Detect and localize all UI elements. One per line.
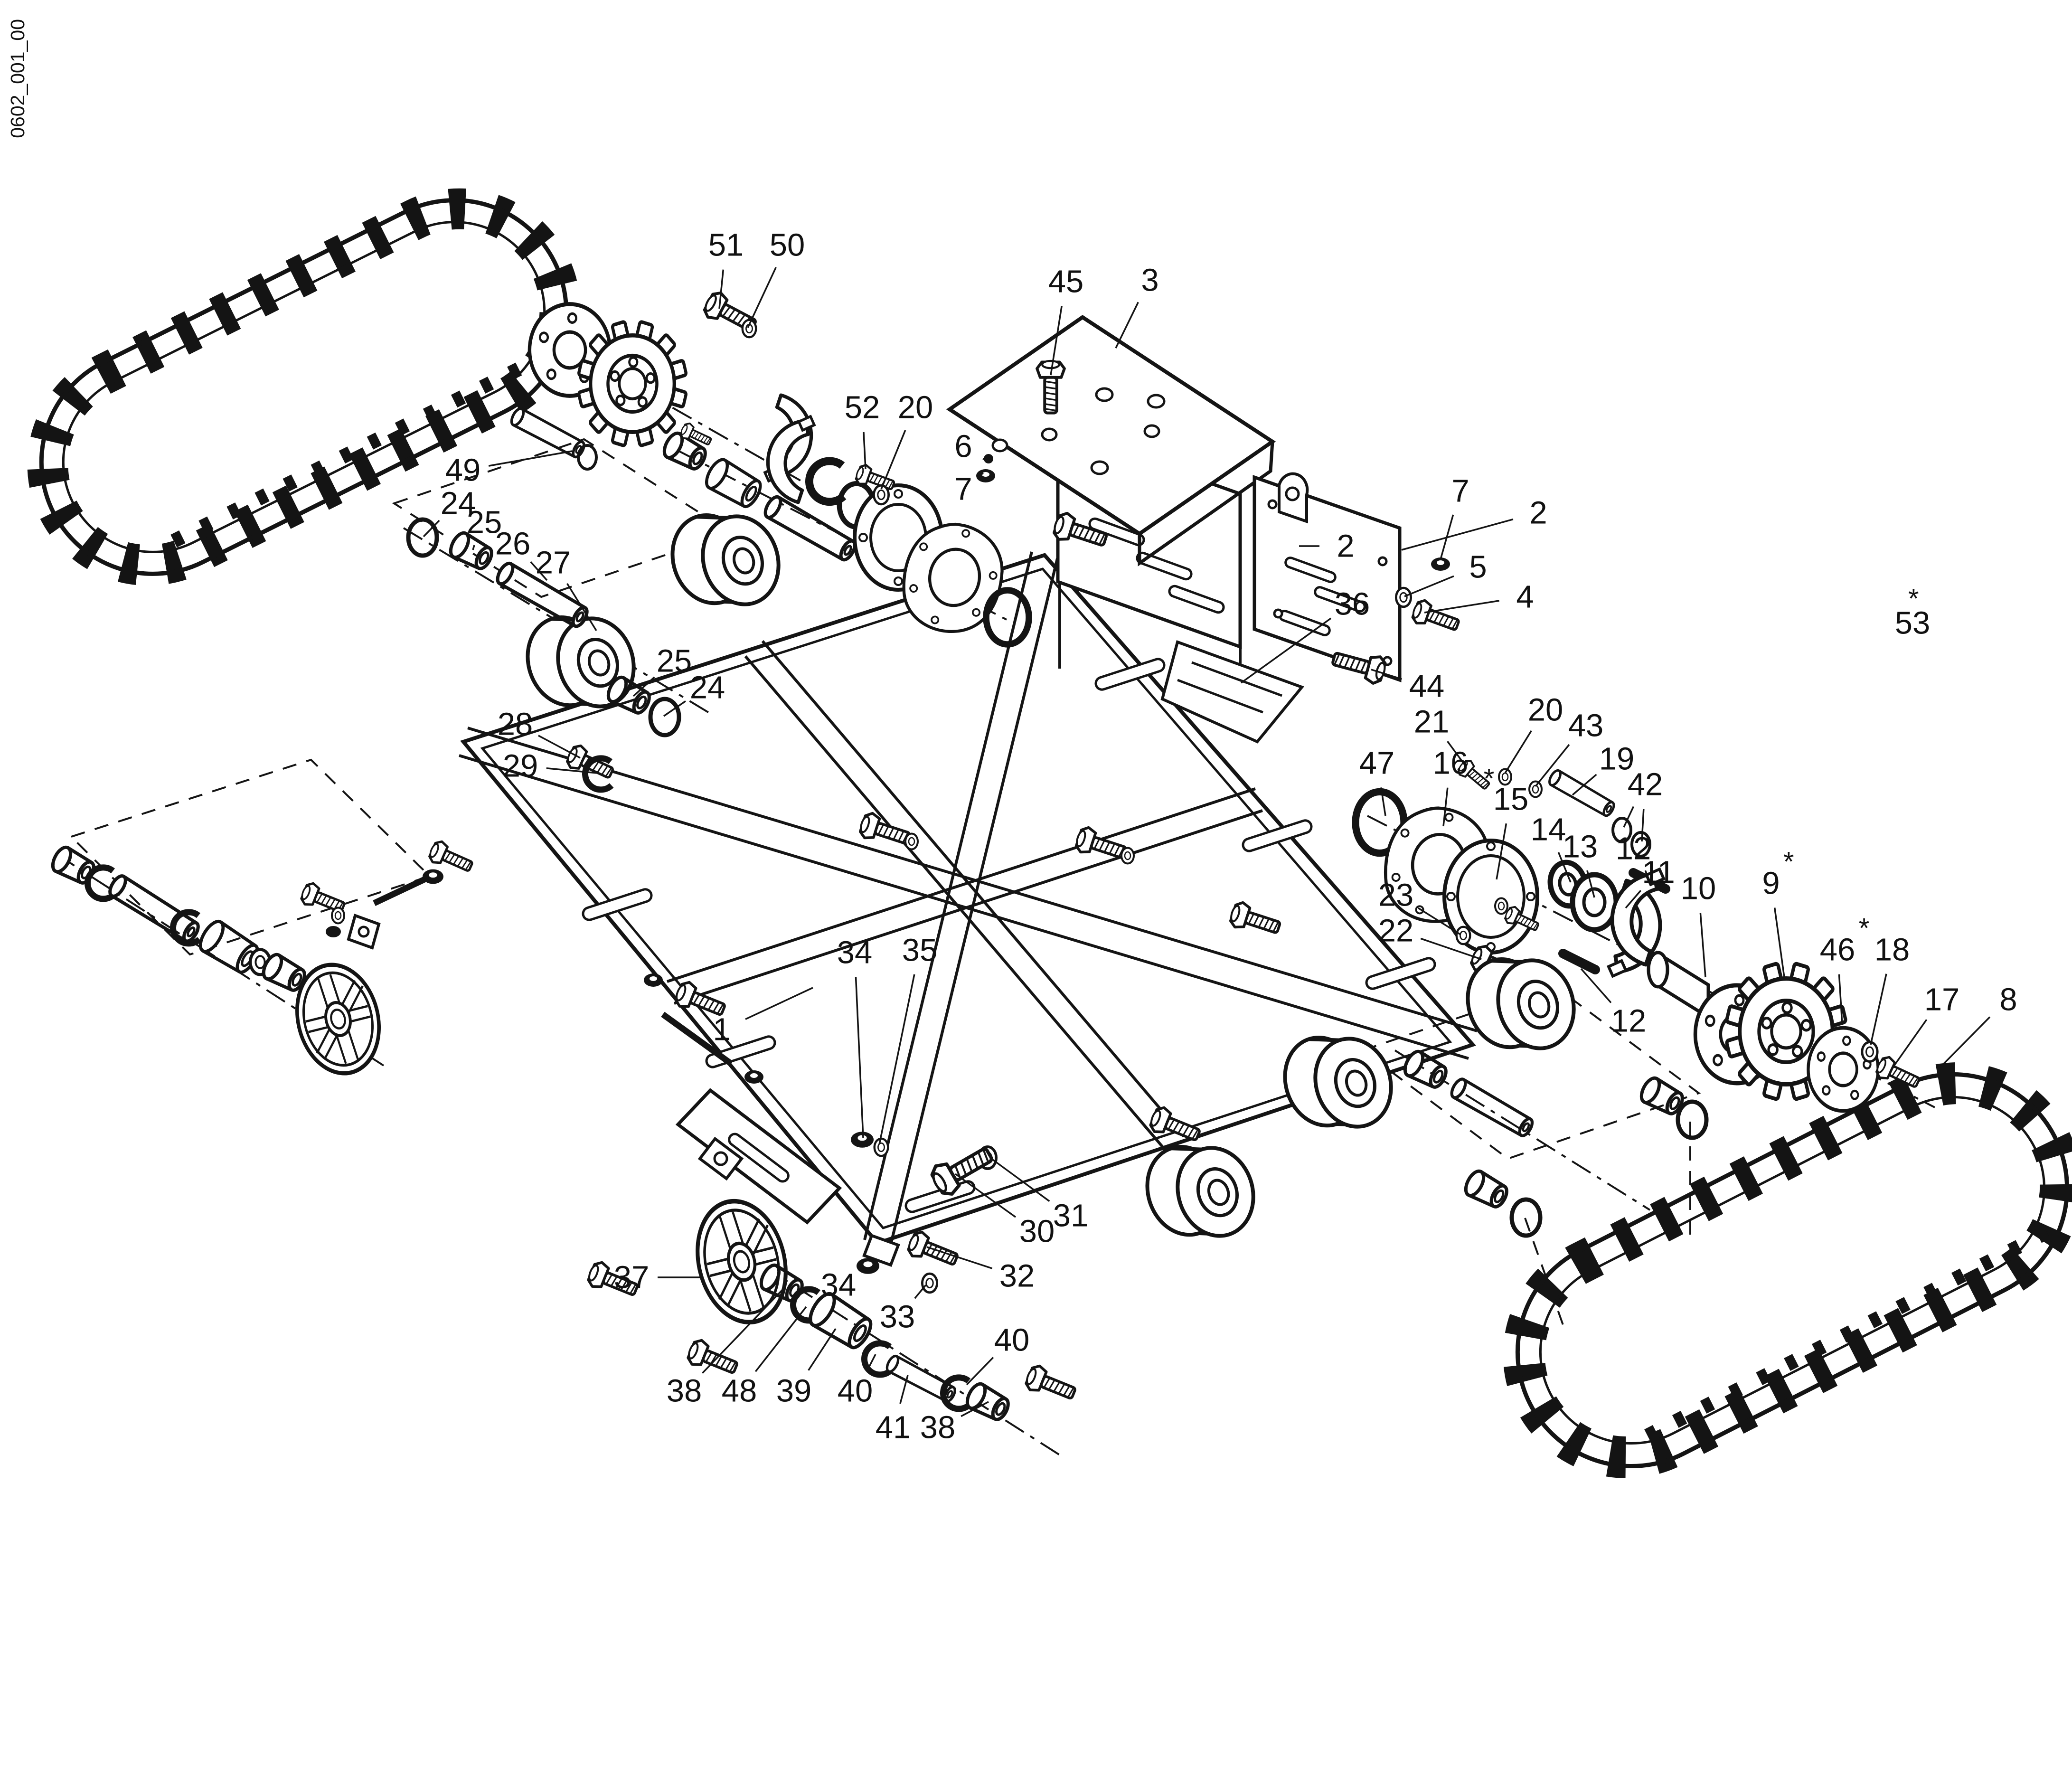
asterisk-marker: * [1783, 849, 1794, 876]
part-label-34: 34 [821, 1269, 857, 1301]
part-label-2: 2 [1337, 530, 1354, 562]
part-label-4: 4 [1516, 581, 1534, 613]
part-label-40: 40 [838, 1375, 873, 1407]
part-label-7: 7 [1451, 475, 1469, 507]
part-label-53-star: 53* [1895, 607, 1931, 639]
part-label-34: 34 [837, 937, 873, 969]
document-code: 0602_001_00 [7, 19, 29, 138]
part-label-24: 24 [690, 672, 725, 704]
part-label-30: 30 [1019, 1216, 1055, 1247]
part-label-44: 44 [1409, 671, 1445, 702]
part-label-33: 33 [880, 1301, 915, 1333]
part-label-39: 39 [776, 1375, 812, 1407]
part-label-3: 3 [1141, 264, 1158, 296]
part-label-43: 43 [1568, 710, 1604, 742]
part-label-25: 25 [657, 645, 692, 677]
part-label-51: 51 [708, 229, 744, 261]
part-label-1: 1 [713, 1014, 730, 1046]
part-label-16: 16 [1433, 747, 1469, 779]
asterisk-marker: * [1484, 765, 1495, 793]
part-label-10: 10 [1681, 873, 1716, 905]
part-label-38: 38 [920, 1412, 956, 1444]
part-label-8: 8 [1999, 984, 2017, 1016]
asterisk-marker: * [1908, 586, 1919, 613]
part-label-11: 11 [1642, 857, 1675, 888]
part-label-26: 26 [495, 528, 531, 560]
part-label-28: 28 [498, 708, 533, 740]
part-label-17: 17 [1924, 984, 1960, 1016]
part-label-41: 41 [876, 1412, 911, 1444]
part-label-9-star: 9* [1762, 868, 1780, 899]
part-label-7: 7 [954, 473, 972, 505]
part-label-40: 40 [994, 1324, 1030, 1356]
part-label-52: 52 [845, 392, 880, 424]
part-label-22: 22 [1378, 915, 1414, 947]
part-label-50: 50 [770, 229, 805, 261]
part-label-29: 29 [503, 750, 538, 782]
part-label-46-star: 46* [1820, 934, 1855, 966]
part-label-6: 6 [954, 431, 972, 463]
part-label-42: 42 [1628, 769, 1663, 801]
part-labels-layer: 0602_001_00 5150453522067722543644212043… [0, 0, 2072, 1785]
part-label-14: 14 [1531, 814, 1566, 846]
part-label-27: 27 [536, 547, 571, 579]
part-label-20: 20 [898, 392, 933, 424]
part-label-38: 38 [667, 1375, 702, 1407]
parts-diagram-page: 0602_001_00 5150453522067722543644212043… [0, 0, 2072, 1785]
part-label-45: 45 [1048, 266, 1084, 298]
part-label-20: 20 [1528, 694, 1563, 726]
part-label-48: 48 [722, 1375, 757, 1407]
part-label-47: 47 [1359, 747, 1395, 779]
part-label-35: 35 [902, 935, 938, 966]
part-label-12: 12 [1611, 1005, 1647, 1037]
part-label-36: 36 [1335, 588, 1370, 620]
part-label-37: 37 [614, 1262, 650, 1294]
part-label-18: 18 [1874, 934, 1910, 966]
asterisk-marker: * [1859, 915, 1870, 943]
part-label-13: 13 [1563, 831, 1598, 863]
part-label-5: 5 [1469, 551, 1487, 583]
part-label-23: 23 [1378, 879, 1414, 911]
part-label-2: 2 [1529, 497, 1547, 529]
part-label-49: 49 [445, 454, 481, 486]
part-label-21: 21 [1414, 706, 1450, 738]
part-label-32: 32 [999, 1260, 1035, 1292]
part-label-31: 31 [1053, 1200, 1089, 1232]
part-label-15-star: 15* [1493, 784, 1529, 815]
